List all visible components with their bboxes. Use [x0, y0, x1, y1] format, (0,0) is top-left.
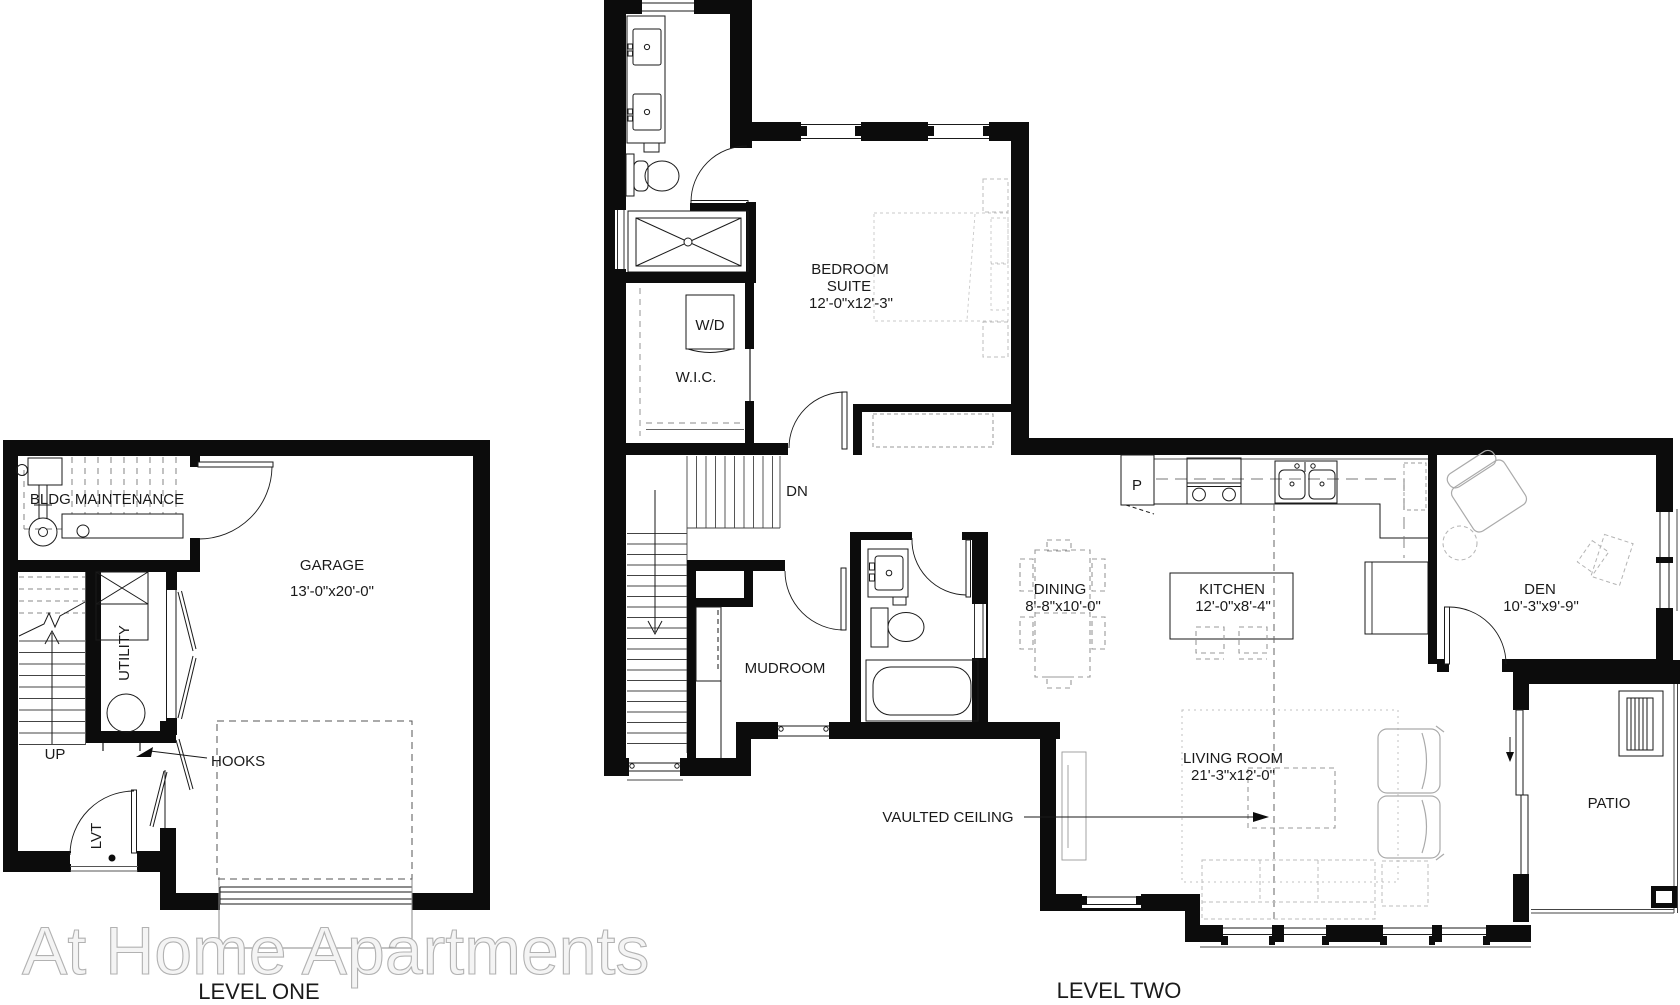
- svg-text:MUDROOM: MUDROOM: [745, 660, 826, 677]
- svg-text:LEVEL TWO: LEVEL TWO: [1057, 978, 1182, 1003]
- svg-text:P: P: [1132, 477, 1142, 494]
- svg-text:8'-8"x10'-0": 8'-8"x10'-0": [1025, 598, 1101, 615]
- svg-text:12'-0"x12'-3": 12'-0"x12'-3": [809, 295, 893, 312]
- svg-text:12'-0"x8'-4": 12'-0"x8'-4": [1195, 598, 1271, 615]
- svg-text:LIVING ROOM: LIVING ROOM: [1183, 750, 1283, 767]
- svg-text:KITCHEN: KITCHEN: [1199, 581, 1265, 598]
- svg-text:BLDG MAINTENANCE: BLDG MAINTENANCE: [30, 491, 184, 508]
- svg-text:W.I.C.: W.I.C.: [676, 369, 717, 386]
- svg-text:21'-3"x12'-0": 21'-3"x12'-0": [1191, 767, 1275, 784]
- svg-text:W/D: W/D: [695, 317, 724, 334]
- svg-text:DINING: DINING: [1034, 581, 1087, 598]
- svg-text:DN: DN: [786, 483, 808, 500]
- svg-text:At Home Apartments: At Home Apartments: [22, 913, 649, 989]
- svg-text:SUITE: SUITE: [827, 278, 871, 295]
- svg-text:HOOKS: HOOKS: [211, 753, 265, 770]
- svg-text:LVT: LVT: [88, 823, 105, 849]
- svg-text:PATIO: PATIO: [1588, 795, 1631, 812]
- svg-text:13'-0"x20'-0": 13'-0"x20'-0": [290, 583, 374, 600]
- svg-text:10'-3"x9'-9": 10'-3"x9'-9": [1503, 598, 1579, 615]
- svg-text:BEDROOM: BEDROOM: [811, 261, 889, 278]
- svg-text:VAULTED CEILING: VAULTED CEILING: [882, 809, 1013, 826]
- svg-text:UP: UP: [45, 746, 66, 763]
- svg-text:UTILITY: UTILITY: [116, 625, 133, 681]
- svg-text:DEN: DEN: [1524, 581, 1556, 598]
- svg-text:LEVEL ONE: LEVEL ONE: [198, 979, 319, 1004]
- svg-text:GARAGE: GARAGE: [300, 557, 364, 574]
